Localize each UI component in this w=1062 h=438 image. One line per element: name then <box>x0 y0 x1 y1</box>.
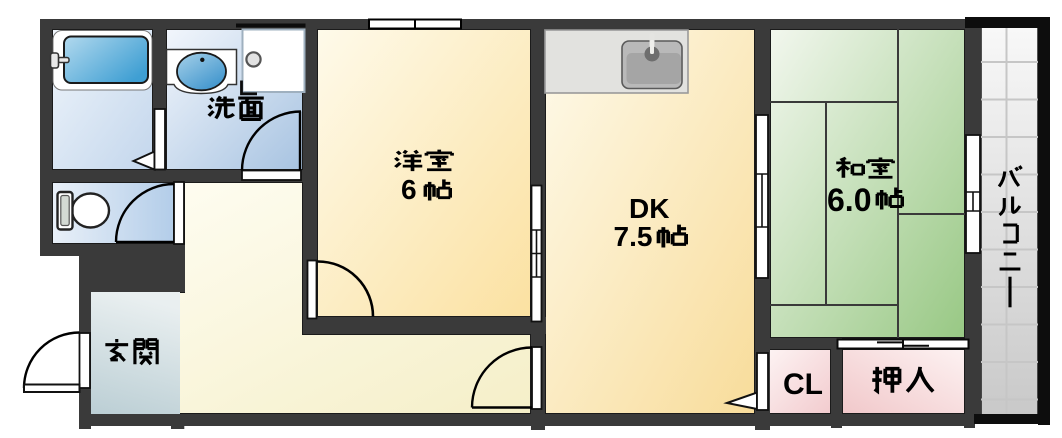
svg-text:7.5: 7.5 <box>614 221 653 252</box>
svg-text:DK: DK <box>629 193 669 224</box>
svg-text:CL: CL <box>783 368 823 401</box>
svg-text:6: 6 <box>401 174 417 205</box>
svg-text:6.0: 6.0 <box>827 182 871 218</box>
